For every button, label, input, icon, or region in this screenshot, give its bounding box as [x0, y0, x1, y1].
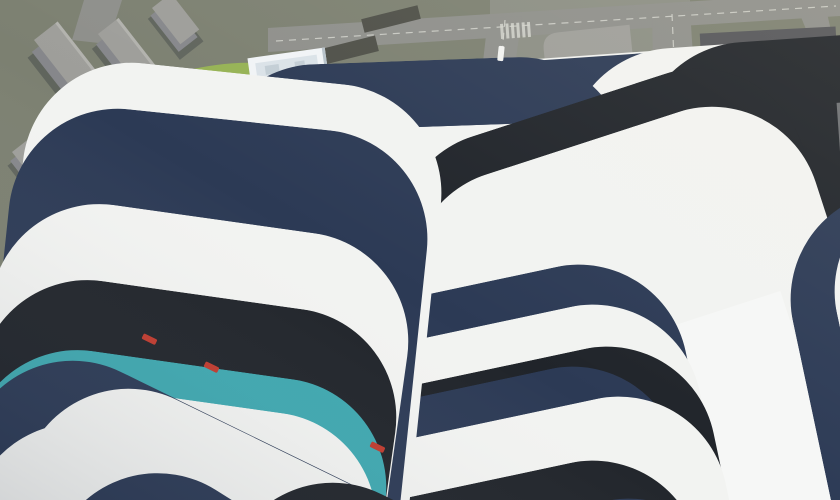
masterplan-rendering [0, 0, 840, 500]
atmosphere-overlay [0, 0, 840, 500]
aerial-render-canvas [0, 0, 840, 500]
